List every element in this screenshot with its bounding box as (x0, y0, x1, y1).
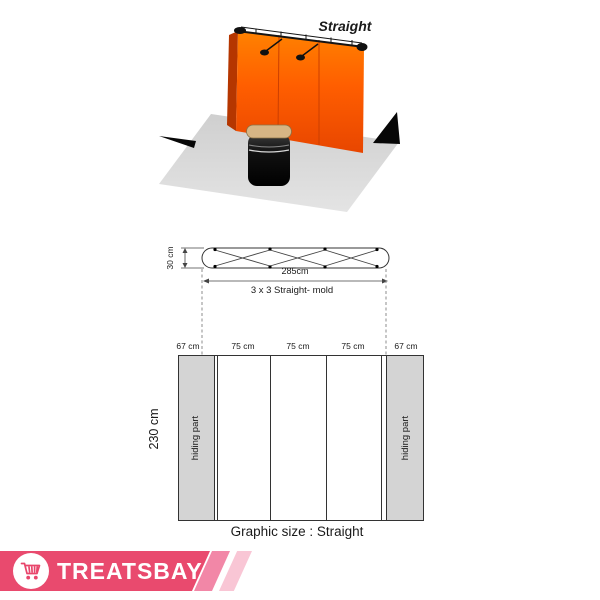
panel-width-label: 67 cm (389, 341, 423, 351)
width-dimension (203, 279, 388, 284)
graphic-height-label: 230 cm (147, 399, 161, 459)
product-spec-image: Straight 30 cm 285cm 3 x 3 Straight- mol… (0, 0, 600, 600)
panel-divider (217, 356, 218, 520)
panel-width-label: 67 cm (171, 341, 205, 351)
shadow-left (159, 136, 196, 148)
showroom-scene (159, 27, 400, 212)
brand-logo-badge (13, 553, 49, 589)
width-dimension-label: 285cm (255, 267, 335, 276)
shadow-right (373, 112, 400, 144)
panel-divider (381, 356, 382, 520)
panel-divider (326, 356, 327, 520)
depth-dimension (181, 248, 204, 268)
podium-top (247, 125, 292, 138)
panel-width-label: 75 cm (226, 341, 260, 351)
mold-type-label: 3 x 3 Straight- mold (222, 286, 362, 296)
depth-dimension-label: 30 cm (165, 238, 175, 278)
truss-end-cap (234, 27, 246, 34)
truss-end-cap (357, 43, 368, 51)
panel-divider (270, 356, 271, 520)
panel-width-label: 75 cm (336, 341, 370, 351)
hiding-part-label-left: hiding part (190, 388, 202, 488)
graphic-size-caption: Graphic size : Straight (180, 525, 414, 539)
shopping-cart-icon (19, 559, 43, 583)
panel-width-label: 75 cm (281, 341, 315, 351)
graphic-layout-rect (178, 355, 424, 521)
podium-case (247, 125, 292, 186)
hiding-part-label-right: hiding part (400, 388, 412, 488)
brand-name: TREATSBAY (57, 551, 203, 591)
scene-title: Straight (305, 19, 385, 33)
